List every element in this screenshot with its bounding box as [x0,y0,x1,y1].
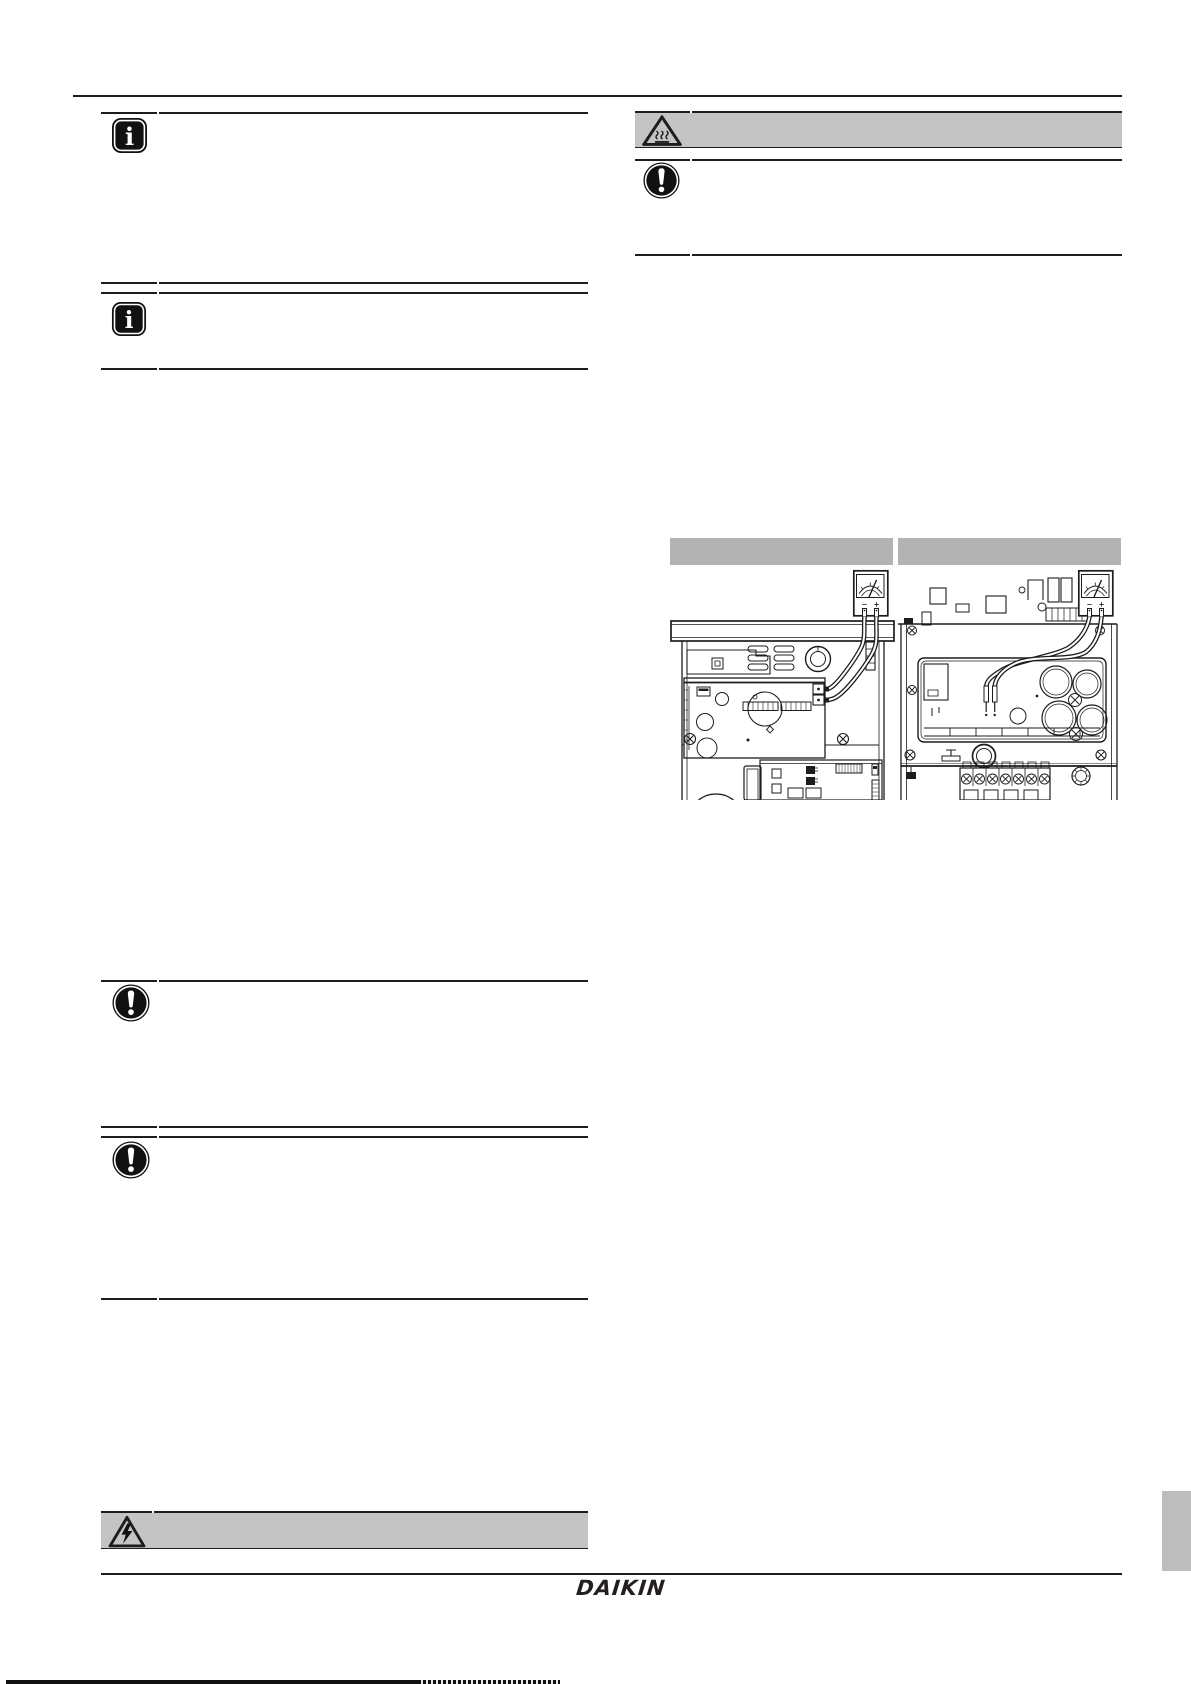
lower-pcb [760,760,882,800]
notice-box2-border-top-right [159,1136,588,1138]
manual-page: i i [0,0,1191,1684]
info-glyph: i [125,306,134,334]
notice-box1-border-bottom-left [101,1126,157,1128]
notice-box-right-border-bottom-right [692,254,1122,256]
notice-box2-border-top-left [101,1136,157,1138]
notice-box1-border-top-left [101,980,157,982]
multimeter: − + [1079,571,1113,617]
print-edge-bar-solid [6,1680,418,1684]
main-pcb [684,678,825,758]
caution-band-border-bottom [635,147,1122,148]
print-edge-bar-dashed [418,1680,560,1684]
notice-box-right-border-top-left [635,159,690,161]
page-edge-tab [1162,1491,1191,1571]
info-box2-border-bottom-right [159,368,588,370]
test-leads [986,617,1101,686]
exclamation-circle-icon [112,1141,150,1179]
notice-box-right-border-bottom-left [635,254,690,256]
screw [908,626,1105,695]
info-box2-border-bottom-left [101,368,157,370]
info-icon: i [111,301,147,337]
terminal-block [960,762,1050,800]
knurled-nut [1072,767,1090,785]
figure-left-header-band [670,538,893,565]
warning-band-border-bottom [101,1548,588,1549]
test-leads [828,617,877,700]
figure-right-header-band [898,538,1121,565]
info-box1-border-top-left [101,112,157,114]
info-icon: i [111,117,148,154]
info-glyph: i [125,122,134,151]
info-box1-border-bottom-right [159,282,588,284]
info-box1-border-bottom-left [101,282,157,284]
enclosure-outline [898,624,1117,800]
screw [685,734,849,745]
daikin-logo: DAIKIN [555,1576,688,1600]
figure-switch-box-right: − + [898,566,1123,800]
inverter-panel [918,658,1107,742]
notice-box-right-border-top-right [692,159,1122,161]
meter-minus-label: − [862,601,868,609]
hot-surface-triangle-icon [641,114,683,147]
info-box1-border-top-right [159,112,588,114]
info-box2-border-top-left [101,292,157,294]
meter-minus-label: − [1087,601,1093,609]
exclamation-circle-icon [112,984,150,1022]
info-box2-border-top-right [159,292,588,294]
caution-band [635,113,1122,148]
footer-rule [101,1573,1122,1575]
exclamation-circle-icon [643,162,680,199]
multimeter: − + [854,571,888,617]
cable-grommet [806,647,831,672]
notice-box2-border-bottom-right [159,1298,588,1300]
notice-box1-border-bottom-right [159,1126,588,1128]
lead-connectors [813,684,829,705]
meter-plus-label: + [874,601,880,609]
meter-plus-label: + [1099,601,1105,609]
notice-box1-border-top-right [159,980,588,982]
warning-band [101,1513,588,1549]
test-probes [984,686,997,716]
figure-switch-box-left: − + [660,566,895,800]
electrical-hazard-triangle-icon [107,1514,147,1549]
notice-box2-border-bottom-left [101,1298,157,1300]
header-rule [73,95,1122,97]
top-pcb-components [904,578,1088,625]
